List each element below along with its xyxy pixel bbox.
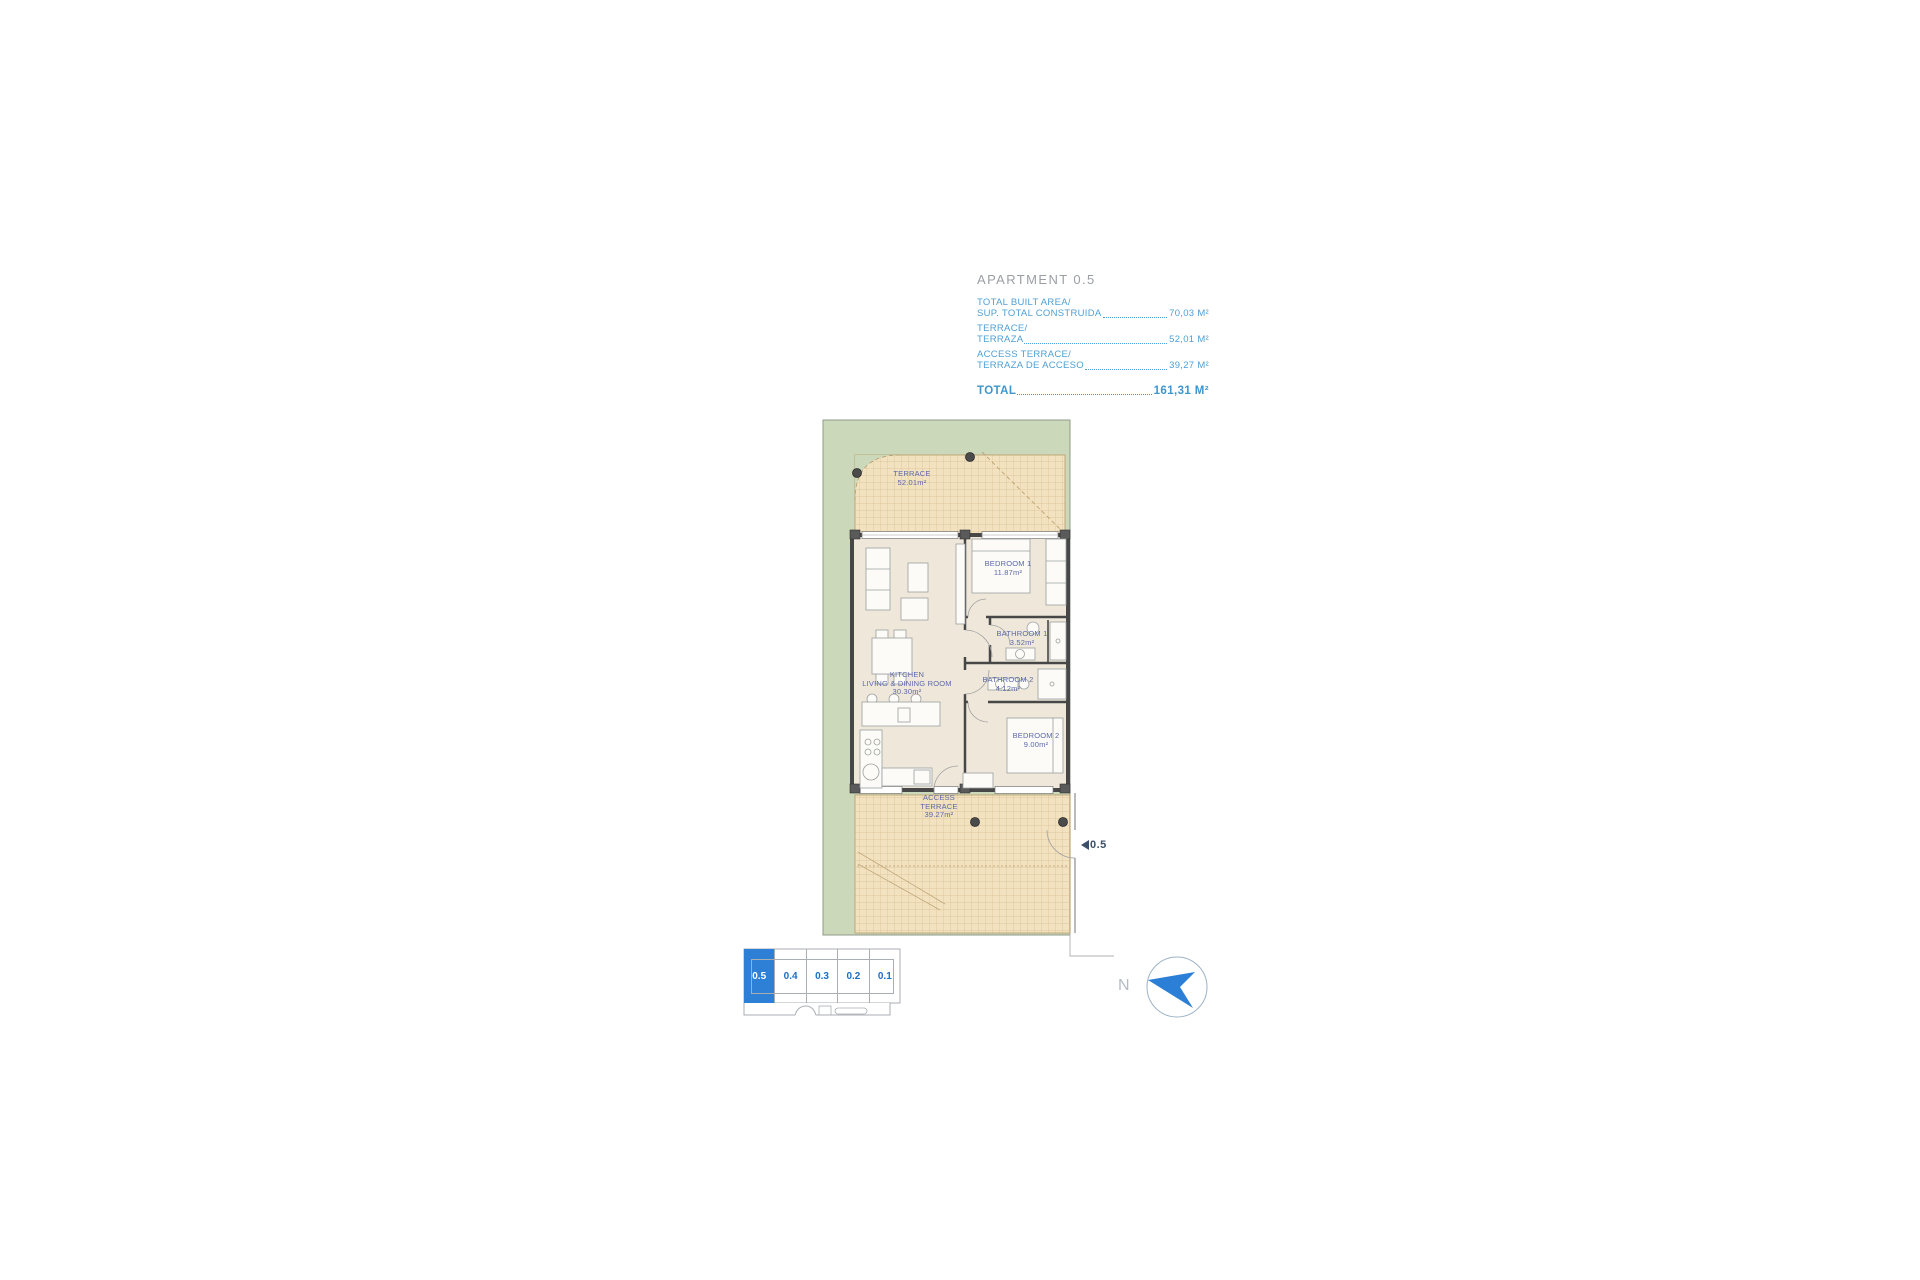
floor-plan-page: APARTMENT 0.5 TOTAL BUILT AREA/ SUP. TOT…	[0, 0, 1920, 1280]
key-plan-unit-01: 0.1	[869, 949, 900, 1003]
terrace-area	[853, 452, 1066, 535]
key-plan-unit-03: 0.3	[806, 949, 837, 1003]
compass: N	[1118, 945, 1238, 1037]
key-plan: 0.5 0.4 0.3 0.2 0.1	[743, 948, 905, 1018]
area-value: 70,03 M²	[1169, 309, 1209, 320]
key-plan-unit-05: 0.5	[744, 949, 774, 1003]
dot-leader	[1085, 369, 1167, 370]
room-label-access-terrace: ACCESS TERRACE 39.27m²	[904, 794, 974, 820]
page-title: APARTMENT 0.5	[977, 272, 1209, 287]
room-label-kitchen-living: KITCHEN LIVING & DINING ROOM 30.30m²	[850, 671, 964, 697]
north-arrow-icon	[1118, 945, 1238, 1037]
area-label-es: SUP. TOTAL CONSTRUIDA	[977, 309, 1102, 320]
area-label-es: TERRAZA DE ACCESO	[977, 361, 1084, 372]
unit-marker: 0.5	[1081, 839, 1107, 851]
area-label-en: TOTAL BUILT AREA/	[977, 298, 1209, 309]
dot-leader	[1017, 394, 1151, 395]
area-label-en: ACCESS TERRACE/	[977, 350, 1209, 361]
area-row-built: TOTAL BUILT AREA/ SUP. TOTAL CONSTRUIDA …	[977, 298, 1209, 319]
total-row: TOTAL 161,31 M²	[977, 385, 1209, 397]
key-plan-units: 0.5 0.4 0.3 0.2 0.1	[744, 949, 900, 1003]
room-label-bathroom1: BATHROOM 1 3.52m²	[985, 630, 1059, 647]
room-label-bedroom1: BEDROOM 1 11.87m²	[968, 560, 1048, 577]
room-label-terrace: TERRACE 52.01m²	[877, 470, 947, 487]
apartment-summary: APARTMENT 0.5 TOTAL BUILT AREA/ SUP. TOT…	[977, 272, 1209, 397]
access-terrace-area	[855, 793, 1114, 956]
total-label: TOTAL	[977, 385, 1016, 397]
room-label-bedroom2: BEDROOM 2 9.00m²	[996, 732, 1076, 749]
area-label-en: TERRACE/	[977, 324, 1209, 335]
total-value: 161,31 M²	[1154, 385, 1209, 397]
north-label: N	[1118, 977, 1131, 995]
key-plan-unit-02: 0.2	[837, 949, 868, 1003]
dot-leader	[1103, 317, 1168, 318]
key-plan-unit-04: 0.4	[774, 949, 805, 1003]
area-label-es: TERRAZA	[977, 335, 1023, 346]
area-row-terrace: TERRACE/ TERRAZA 52,01 M²	[977, 324, 1209, 345]
dot-leader	[1024, 343, 1167, 344]
area-row-access-terrace: ACCESS TERRACE/ TERRAZA DE ACCESO 39,27 …	[977, 350, 1209, 371]
area-value: 52,01 M²	[1169, 335, 1209, 346]
area-value: 39,27 M²	[1169, 361, 1209, 372]
room-label-bathroom2: BATHROOM 2 4.12m²	[971, 676, 1045, 693]
left-arrow-icon	[1081, 840, 1089, 850]
